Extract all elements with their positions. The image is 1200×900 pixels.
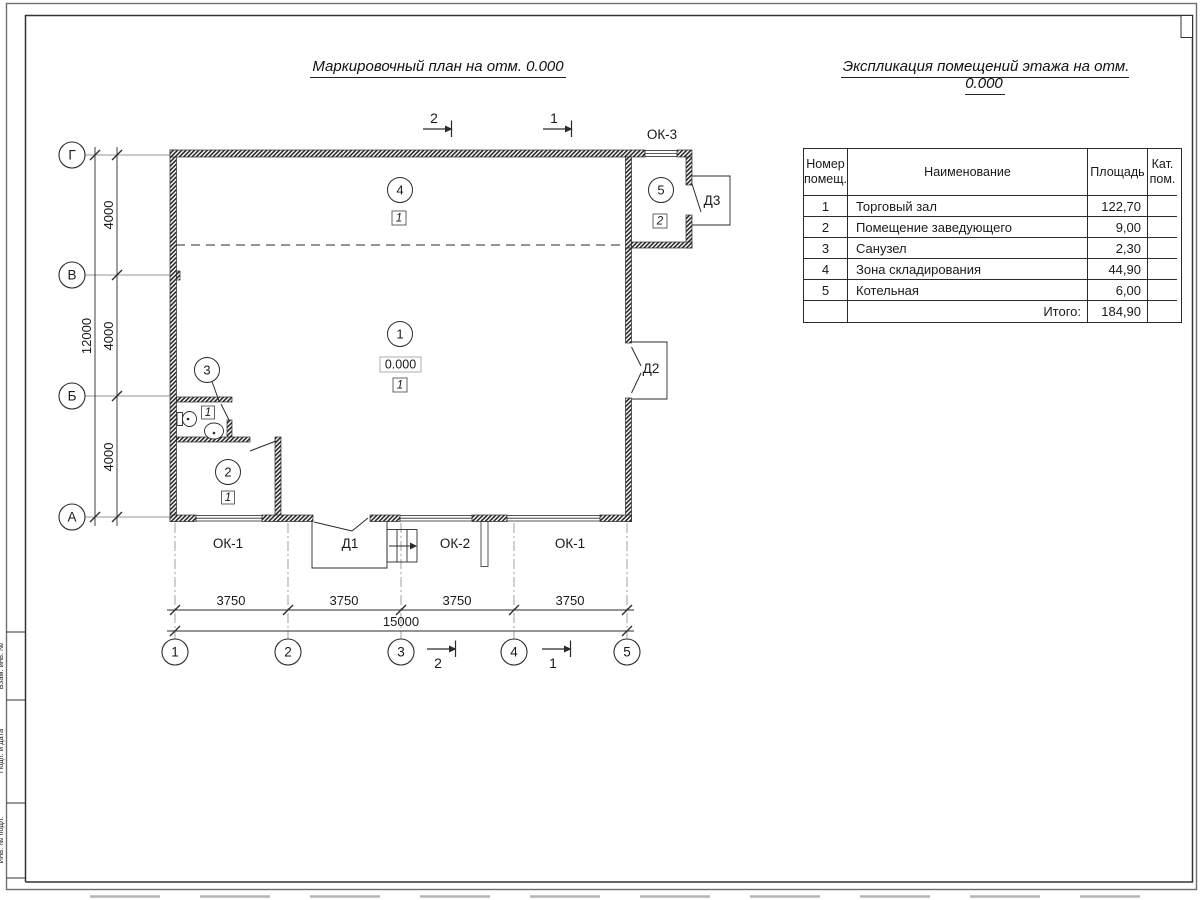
opening-labels: ОК-1 Д1 ОК-2 ОК-1 ОК-3 Д2 Д3 bbox=[213, 127, 721, 551]
col-header-category: Кат. пом. bbox=[1148, 149, 1177, 196]
wall-room2-right bbox=[275, 437, 281, 522]
window-label-ok2: ОК-2 bbox=[440, 536, 470, 551]
cell-room-name: Помещение заведующего bbox=[848, 217, 1088, 238]
cell-room-number: 3 bbox=[804, 238, 848, 259]
axis-label-row: В bbox=[67, 268, 76, 283]
plan-title-text: Маркировочный план на отм. 0.000 bbox=[310, 58, 565, 78]
wall-room3-stub bbox=[227, 420, 232, 437]
room-category: 1 bbox=[225, 492, 231, 504]
axis-label-col: 1 bbox=[171, 645, 179, 660]
cell-room-category bbox=[1148, 280, 1177, 301]
axis-label-col: 3 bbox=[397, 645, 405, 660]
corner-stamp-box bbox=[1181, 16, 1193, 38]
dim-label: 4000 bbox=[101, 443, 116, 472]
frame-side-labels: Взам. инв. № Подп. и дата Инв. № подл. bbox=[0, 643, 5, 864]
cell-room-area: 9,00 bbox=[1088, 217, 1148, 238]
col-header-number: Номер помещ. bbox=[804, 149, 848, 196]
floor-plan-svg: Взам. инв. № Подп. и дата Инв. № подл. bbox=[0, 0, 1200, 900]
dim-label: 4000 bbox=[101, 201, 116, 230]
wall-top-right bbox=[677, 150, 692, 157]
col-header-area: Площадь bbox=[1088, 149, 1148, 196]
room-number: 3 bbox=[203, 363, 210, 378]
window-label-ok1: ОК-1 bbox=[213, 536, 243, 551]
room-labels: 4 1 5 3 2 1 1 2 1 1 0.00 bbox=[195, 178, 674, 505]
cell-room-number: 5 bbox=[804, 280, 848, 301]
dimension-labels: 3750 3750 3750 3750 15000 12000 4000 400… bbox=[79, 201, 584, 629]
window-label-ok1: ОК-1 bbox=[555, 536, 585, 551]
axis-label-col: 4 bbox=[510, 645, 518, 660]
outer-border bbox=[7, 4, 1197, 890]
wall-bottom-seg bbox=[262, 515, 313, 522]
drawing-sheet: Взам. инв. № Подп. и дата Инв. № подл. bbox=[0, 0, 1200, 900]
axis-label-row: А bbox=[67, 510, 76, 525]
section-label: 2 bbox=[434, 655, 442, 671]
section-label: 2 bbox=[430, 110, 438, 126]
cell-room-number: 1 bbox=[804, 196, 848, 217]
section-marks bbox=[423, 121, 573, 658]
dim-label: 4000 bbox=[101, 322, 116, 351]
schedule-title-text: Экспликация помещений этажа на отм. 0.00… bbox=[841, 58, 1130, 95]
cell-room-name: Торговый зал bbox=[848, 196, 1088, 217]
section-label: 1 bbox=[549, 655, 557, 671]
door-leaf-d2 bbox=[632, 347, 642, 393]
cell-room-name: Котельная bbox=[848, 280, 1088, 301]
door-label-d1: Д1 bbox=[342, 536, 359, 551]
wall-bottom-seg bbox=[472, 515, 507, 522]
door-leaf-d3 bbox=[692, 184, 701, 212]
dim-label: 3750 bbox=[443, 593, 472, 608]
porch-side-element bbox=[481, 522, 488, 567]
room-category: 2 bbox=[656, 216, 664, 228]
section-mark-labels: 2 1 2 1 bbox=[430, 110, 558, 671]
cell-room-name: Санузел bbox=[848, 238, 1088, 259]
side-label: Взам. инв. № bbox=[0, 643, 5, 689]
cell-room-number: 4 bbox=[804, 259, 848, 280]
cell-room-category bbox=[1148, 259, 1177, 280]
schedule-title: Экспликация помещений этажа на отм. 0.00… bbox=[820, 58, 1150, 92]
door-leaf-d1 bbox=[314, 518, 368, 531]
wall-right-lower bbox=[626, 398, 632, 522]
plan-title: Маркировочный план на отм. 0.000 bbox=[288, 58, 588, 75]
cell-room-area: 2,30 bbox=[1088, 238, 1148, 259]
porches bbox=[312, 176, 730, 568]
room-category: 1 bbox=[397, 380, 403, 392]
room-number: 5 bbox=[657, 183, 664, 198]
elevation-mark: 0.000 bbox=[380, 357, 421, 372]
inner-frame bbox=[26, 16, 1193, 883]
sink-icon bbox=[205, 423, 224, 439]
axis-label-col: 5 bbox=[623, 645, 631, 660]
dim-label: 3750 bbox=[330, 593, 359, 608]
door-label-d2: Д2 bbox=[643, 361, 660, 376]
room-category: 1 bbox=[205, 407, 211, 419]
cell-total-category bbox=[1148, 301, 1177, 322]
cell-room-area: 6,00 bbox=[1088, 280, 1148, 301]
side-label: Подп. и дата bbox=[0, 728, 5, 773]
door-leaf-room3 bbox=[221, 404, 229, 420]
wall-room5-bottom bbox=[632, 242, 693, 248]
total-label: Итого: bbox=[848, 301, 1088, 322]
wall-right-upper bbox=[626, 157, 632, 248]
room-number: 4 bbox=[396, 183, 403, 198]
cell-total-spacer bbox=[804, 301, 848, 322]
axis-bubble-labels: Г В Б А 1 2 3 4 5 bbox=[67, 148, 630, 660]
fixtures bbox=[177, 412, 224, 440]
side-strip-dividers bbox=[7, 632, 26, 878]
dim-label-total: 15000 bbox=[383, 614, 419, 629]
cell-room-area: 122,70 bbox=[1088, 196, 1148, 217]
room-category: 1 bbox=[396, 213, 402, 225]
axis-label-col: 2 bbox=[284, 645, 292, 660]
dim-label-total: 12000 bbox=[79, 318, 94, 354]
wall-bottom-seg bbox=[370, 515, 400, 522]
section-label: 1 bbox=[550, 110, 558, 126]
room-schedule-table: Номер помещ. Наименование Площадь Кат. п… bbox=[803, 148, 1182, 323]
wall-left bbox=[170, 150, 177, 522]
wall-bottom-seg bbox=[600, 515, 632, 522]
window-label-ok3: ОК-3 bbox=[647, 127, 677, 142]
axis-bubbles bbox=[59, 142, 640, 665]
dim-label: 3750 bbox=[217, 593, 246, 608]
elevation-value: 0.000 bbox=[385, 358, 416, 372]
windows bbox=[196, 151, 677, 522]
axis-label-row: Г bbox=[68, 148, 76, 163]
side-label: Инв. № подл. bbox=[0, 817, 5, 864]
wall-room5-right-top bbox=[686, 157, 692, 185]
cell-room-category bbox=[1148, 238, 1177, 259]
door-leaf-room2 bbox=[250, 441, 276, 451]
walls bbox=[170, 150, 692, 522]
toilet-icon bbox=[177, 412, 197, 427]
col-header-name: Наименование bbox=[848, 149, 1088, 196]
wall-right-mid bbox=[626, 248, 632, 343]
wall-top bbox=[170, 150, 645, 157]
dim-label: 3750 bbox=[556, 593, 585, 608]
axis-lines bbox=[85, 155, 627, 639]
cell-room-category bbox=[1148, 217, 1177, 238]
room-number: 2 bbox=[224, 465, 231, 480]
sheet-frame bbox=[7, 4, 1197, 897]
steps-direction-arrow bbox=[389, 543, 417, 550]
door-label-d3: Д3 bbox=[704, 193, 721, 208]
axis-label-row: Б bbox=[68, 389, 77, 404]
cell-room-name: Зона складирования bbox=[848, 259, 1088, 280]
cell-room-category bbox=[1148, 196, 1177, 217]
total-area-value: 184,90 bbox=[1088, 301, 1148, 322]
cell-room-area: 44,90 bbox=[1088, 259, 1148, 280]
wall-bottom-seg bbox=[170, 515, 196, 522]
room-number: 1 bbox=[396, 327, 403, 342]
wall-room3-top bbox=[177, 397, 233, 402]
cell-room-number: 2 bbox=[804, 217, 848, 238]
wall-pilaster bbox=[177, 271, 181, 280]
